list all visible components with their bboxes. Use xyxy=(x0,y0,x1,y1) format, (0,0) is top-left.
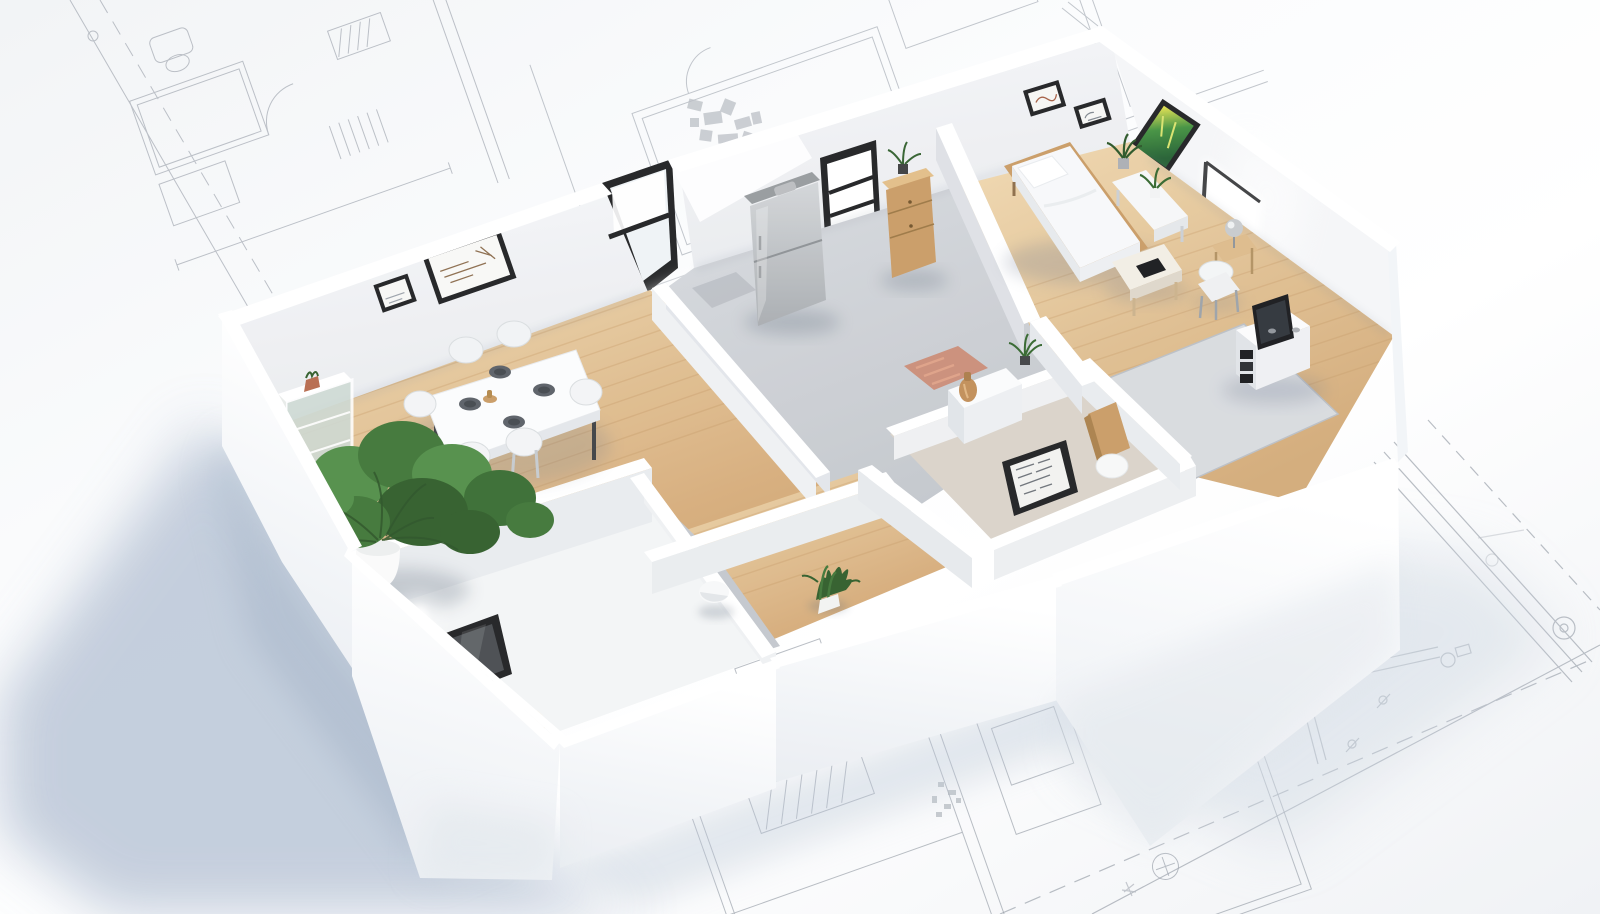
scene-canvas xyxy=(0,0,1600,914)
floorplan-render xyxy=(0,0,1600,914)
vignette-overlay xyxy=(0,0,1600,914)
